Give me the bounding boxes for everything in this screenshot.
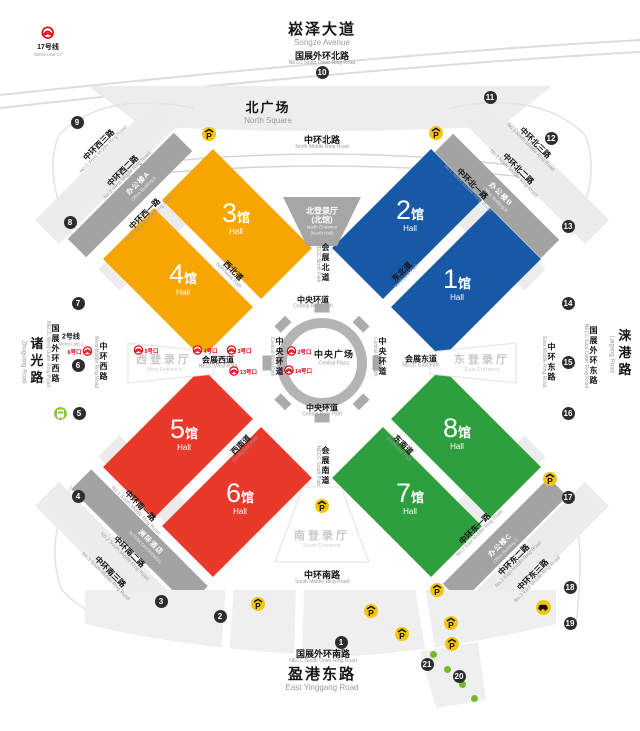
gate-badge-18: 18 xyxy=(564,581,577,594)
svg-text:P: P xyxy=(449,641,455,651)
svg-text:P: P xyxy=(368,608,374,618)
metro-logo-icon xyxy=(192,342,202,360)
svg-text:P: P xyxy=(547,476,553,486)
svg-text:P: P xyxy=(255,601,261,611)
hall-7-label: 7馆Hall xyxy=(396,480,424,516)
metro-logo-icon xyxy=(229,363,239,381)
gate-badge-3: 3 xyxy=(155,595,168,608)
parking-icon: P xyxy=(315,499,329,513)
gate-badge-2: 2 xyxy=(214,610,227,623)
parking-icon: P xyxy=(251,597,265,611)
road-label: Laigang Road涞港路 xyxy=(608,329,631,380)
songze-avenue-label: 崧泽大道 Songze Avenue xyxy=(288,21,356,47)
parking-icon: P xyxy=(444,616,458,630)
svg-text:P: P xyxy=(433,130,439,140)
parking-icon: P xyxy=(364,604,378,618)
east-entrance-label: 东登录厅 East Entrance xyxy=(454,354,510,374)
hall-2-label: 2馆Hall xyxy=(396,197,424,233)
gate-badge-20: 20 xyxy=(453,670,466,683)
metro-line-badge: 17号线Metro Line 17 xyxy=(34,26,62,58)
gate-badge-1: 1 xyxy=(335,636,348,649)
road-label: Zhuguang Road诸光路 xyxy=(20,337,43,388)
tree-icon xyxy=(430,651,437,658)
gate-badge-13: 13 xyxy=(562,220,575,233)
parking-icon: P xyxy=(445,637,459,651)
metro-logo-icon xyxy=(284,365,294,375)
parking-icon: P xyxy=(429,126,443,140)
road-label: NECC North Path会展北道 xyxy=(314,243,330,283)
songze-avenue-zh: 崧泽大道 xyxy=(288,21,356,38)
svg-text:P: P xyxy=(448,620,454,630)
metro-exit: 13号口 xyxy=(229,363,257,381)
tree-icon xyxy=(444,666,451,673)
metro-logo-icon xyxy=(226,345,236,355)
metro-logo-icon xyxy=(83,346,93,356)
svg-text:P: P xyxy=(434,587,440,597)
road-label: 中央环道Central Ring Path xyxy=(293,296,332,311)
metro-logo-icon xyxy=(42,26,55,39)
gate-badge-5: 5 xyxy=(73,407,86,420)
metro-logo-icon xyxy=(192,345,202,355)
road-label: 中环北路North Middle Ring Road xyxy=(295,135,348,151)
metro-logo-icon xyxy=(226,342,236,360)
gate-badge-8: 8 xyxy=(64,216,77,229)
metro-logo-icon xyxy=(286,343,296,361)
parking-icon: P xyxy=(543,472,557,486)
gate-badge-17: 17 xyxy=(562,491,575,504)
svg-text:P: P xyxy=(206,131,212,141)
road-label: Central Ring Path中央环道 xyxy=(371,337,387,377)
hall-5-label: 5馆Hall xyxy=(170,416,198,452)
road-label: 会展东道NECC East Path xyxy=(402,355,439,370)
hall-1-label: 1馆Hall xyxy=(443,266,471,302)
taxi-icon xyxy=(536,600,551,615)
road-label: NECC East Outer Ring Road国展外环东路 xyxy=(582,324,598,388)
road-label: NECC West Outer Ring Road国展外环西路 xyxy=(44,321,60,387)
gate-badge-19: 19 xyxy=(564,617,577,630)
bus-stop-icon xyxy=(54,407,67,420)
metro-exit: 14号口 xyxy=(284,362,312,380)
road-label: 西南道Southwest Path xyxy=(225,429,260,464)
road-label: 中央环道Central Ring Path xyxy=(302,404,341,419)
metro-exit: 6号口 xyxy=(67,343,92,361)
parking-icon: P xyxy=(395,627,409,641)
south-entrance-label: 南登录厅 South Entrance xyxy=(294,530,350,550)
necc-venue-map: 崧泽大道 Songze Avenue 国展外环北路 NECC North Out… xyxy=(0,0,640,731)
gate-badge-14: 14 xyxy=(562,297,575,310)
metro-exit: 3号口 xyxy=(226,342,251,360)
metro-logo-icon xyxy=(83,343,93,361)
hall-3-label: 3馆Hall xyxy=(222,200,250,236)
gate-badge-15: 15 xyxy=(562,356,575,369)
road-label: West Middle Ring Road中环西路 xyxy=(92,336,108,388)
gate-badge-21: 21 xyxy=(421,658,434,671)
gate-badge-9: 9 xyxy=(71,116,84,129)
yinggang-road-label: 盈港东路 East Yinggang Road xyxy=(286,666,359,692)
north-entrance-label: 北登录厅 (北馆) North Entrance (North Hall) xyxy=(306,207,338,236)
metro-exit: 4号口 xyxy=(192,342,217,360)
metro-logo-icon xyxy=(286,346,296,356)
gate-badge-12: 12 xyxy=(545,132,558,145)
outer-south-road-label: 国展外环南路 NECC South Outer Ring Road xyxy=(289,649,357,665)
svg-text:P: P xyxy=(319,503,325,513)
road-label: Central Ring Path中央环道 xyxy=(268,337,284,377)
road-label: NECC South Path会展南道 xyxy=(314,446,330,486)
road-label: 西北道Northwest Path xyxy=(214,256,249,291)
metro-logo-icon xyxy=(284,362,294,380)
metro-logo-icon xyxy=(42,26,55,44)
road-label: East Middle Ring Road中环东路 xyxy=(540,336,556,387)
tree-icon xyxy=(471,695,478,702)
songze-avenue-en: Songze Avenue xyxy=(288,38,356,47)
gate-badge-4: 4 xyxy=(72,490,85,503)
metro-logo-icon xyxy=(229,366,239,376)
gate-badge-10: 10 xyxy=(316,66,329,79)
outer-north-road-label: 国展外环北路 NECC North Outer Ring Road xyxy=(289,51,356,67)
svg-text:P: P xyxy=(399,631,405,641)
central-plaza-label: 中央广场 Central Plaza xyxy=(314,350,354,367)
hall-4-label: 4馆Hall xyxy=(169,261,197,297)
north-square-label: 北广场 North Square xyxy=(244,101,292,125)
gate-badge-16: 16 xyxy=(562,407,575,420)
metro-exit: 2号口 xyxy=(286,343,311,361)
parking-icon: P xyxy=(430,583,444,597)
gate-badge-11: 11 xyxy=(484,91,497,104)
hall-6-label: 6馆Hall xyxy=(226,480,254,516)
road-label: 东南道Southeast Path xyxy=(384,430,419,465)
gate-badge-7: 7 xyxy=(72,297,85,310)
west-entrance-label: 西登录厅 West Entrance xyxy=(136,354,192,374)
parking-icon: P xyxy=(202,127,216,141)
road-label: 中环南路South Middle Ring Road xyxy=(295,570,349,586)
road-label: 东北道Northeast Path xyxy=(387,257,421,291)
hall-8-label: 8馆Hall xyxy=(443,415,471,451)
